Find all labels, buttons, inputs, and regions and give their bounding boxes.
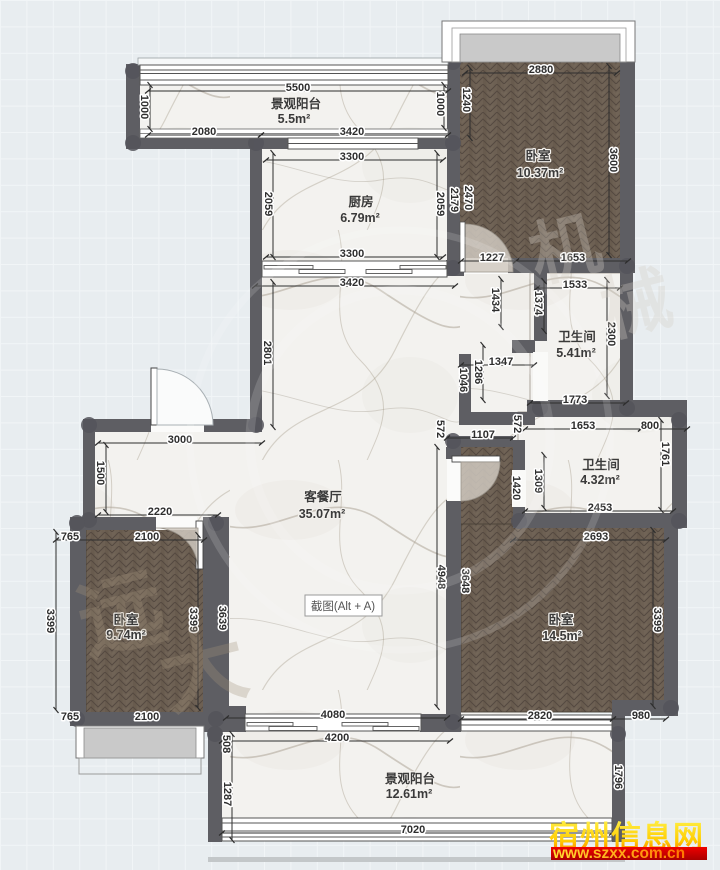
- svg-text:5500: 5500: [286, 82, 310, 94]
- svg-text:2100: 2100: [135, 711, 159, 723]
- svg-text:2080: 2080: [192, 126, 216, 138]
- svg-text:2179: 2179: [448, 188, 460, 212]
- svg-text:2100: 2100: [135, 531, 159, 543]
- svg-text:1286: 1286: [472, 360, 484, 384]
- svg-text:截图(Alt + A): 截图(Alt + A): [311, 599, 375, 613]
- svg-text:35.07m²: 35.07m²: [299, 507, 346, 521]
- svg-text:1773: 1773: [563, 394, 587, 406]
- svg-text:2470: 2470: [462, 186, 474, 210]
- svg-text:2220: 2220: [148, 506, 172, 518]
- svg-text:2880: 2880: [529, 64, 553, 76]
- svg-text:800: 800: [641, 420, 659, 432]
- svg-text:10.37m²: 10.37m²: [517, 166, 564, 180]
- svg-text:卫生间: 卫生间: [582, 457, 620, 472]
- svg-text:1796: 1796: [612, 765, 624, 789]
- svg-text:1000: 1000: [138, 95, 150, 119]
- svg-text:卧室: 卧室: [548, 612, 574, 627]
- svg-text:3600: 3600: [607, 148, 619, 172]
- svg-text:3420: 3420: [340, 277, 364, 289]
- svg-text:4200: 4200: [325, 732, 349, 744]
- svg-text:12.61m²: 12.61m²: [386, 787, 433, 801]
- svg-text:508: 508: [220, 735, 232, 753]
- svg-text:1107: 1107: [471, 429, 495, 441]
- svg-text:6.79m²: 6.79m²: [340, 211, 380, 225]
- svg-text:1653: 1653: [571, 420, 595, 432]
- svg-text:卧室: 卧室: [525, 148, 551, 163]
- svg-text:3399: 3399: [651, 608, 663, 632]
- svg-text:景观阳台: 景观阳台: [271, 96, 321, 111]
- svg-text:572: 572: [434, 420, 446, 438]
- svg-text:5.5m²: 5.5m²: [278, 112, 311, 126]
- svg-text:景观阳台: 景观阳台: [385, 771, 435, 786]
- svg-text:4080: 4080: [321, 709, 345, 721]
- svg-text:1500: 1500: [94, 461, 106, 485]
- svg-text:980: 980: [632, 710, 650, 722]
- svg-text:3420: 3420: [340, 126, 364, 138]
- svg-text:1000: 1000: [434, 92, 446, 116]
- svg-text:7020: 7020: [401, 824, 425, 836]
- svg-text:1420: 1420: [510, 476, 522, 500]
- svg-text:4.32m²: 4.32m²: [580, 473, 620, 487]
- svg-text:3300: 3300: [340, 151, 364, 163]
- svg-text:3399: 3399: [44, 609, 56, 633]
- svg-text:2059: 2059: [262, 192, 274, 216]
- svg-text:14.5m²: 14.5m²: [542, 629, 582, 643]
- svg-text:1287: 1287: [221, 782, 233, 806]
- svg-text:www.szxx.com.cn: www.szxx.com.cn: [552, 845, 685, 862]
- svg-text:2059: 2059: [434, 192, 446, 216]
- svg-text:765: 765: [61, 711, 79, 723]
- svg-text:1240: 1240: [460, 88, 472, 112]
- svg-text:3300: 3300: [340, 248, 364, 260]
- svg-text:1046: 1046: [457, 368, 469, 392]
- svg-text:厨房: 厨房: [348, 194, 373, 209]
- svg-text:客餐厅: 客餐厅: [303, 489, 342, 504]
- svg-text:572: 572: [511, 415, 523, 433]
- svg-text:1434: 1434: [489, 288, 501, 313]
- svg-text:1347: 1347: [489, 356, 513, 368]
- svg-text:2820: 2820: [528, 710, 552, 722]
- svg-text:765: 765: [61, 531, 79, 543]
- svg-text:1761: 1761: [659, 442, 671, 466]
